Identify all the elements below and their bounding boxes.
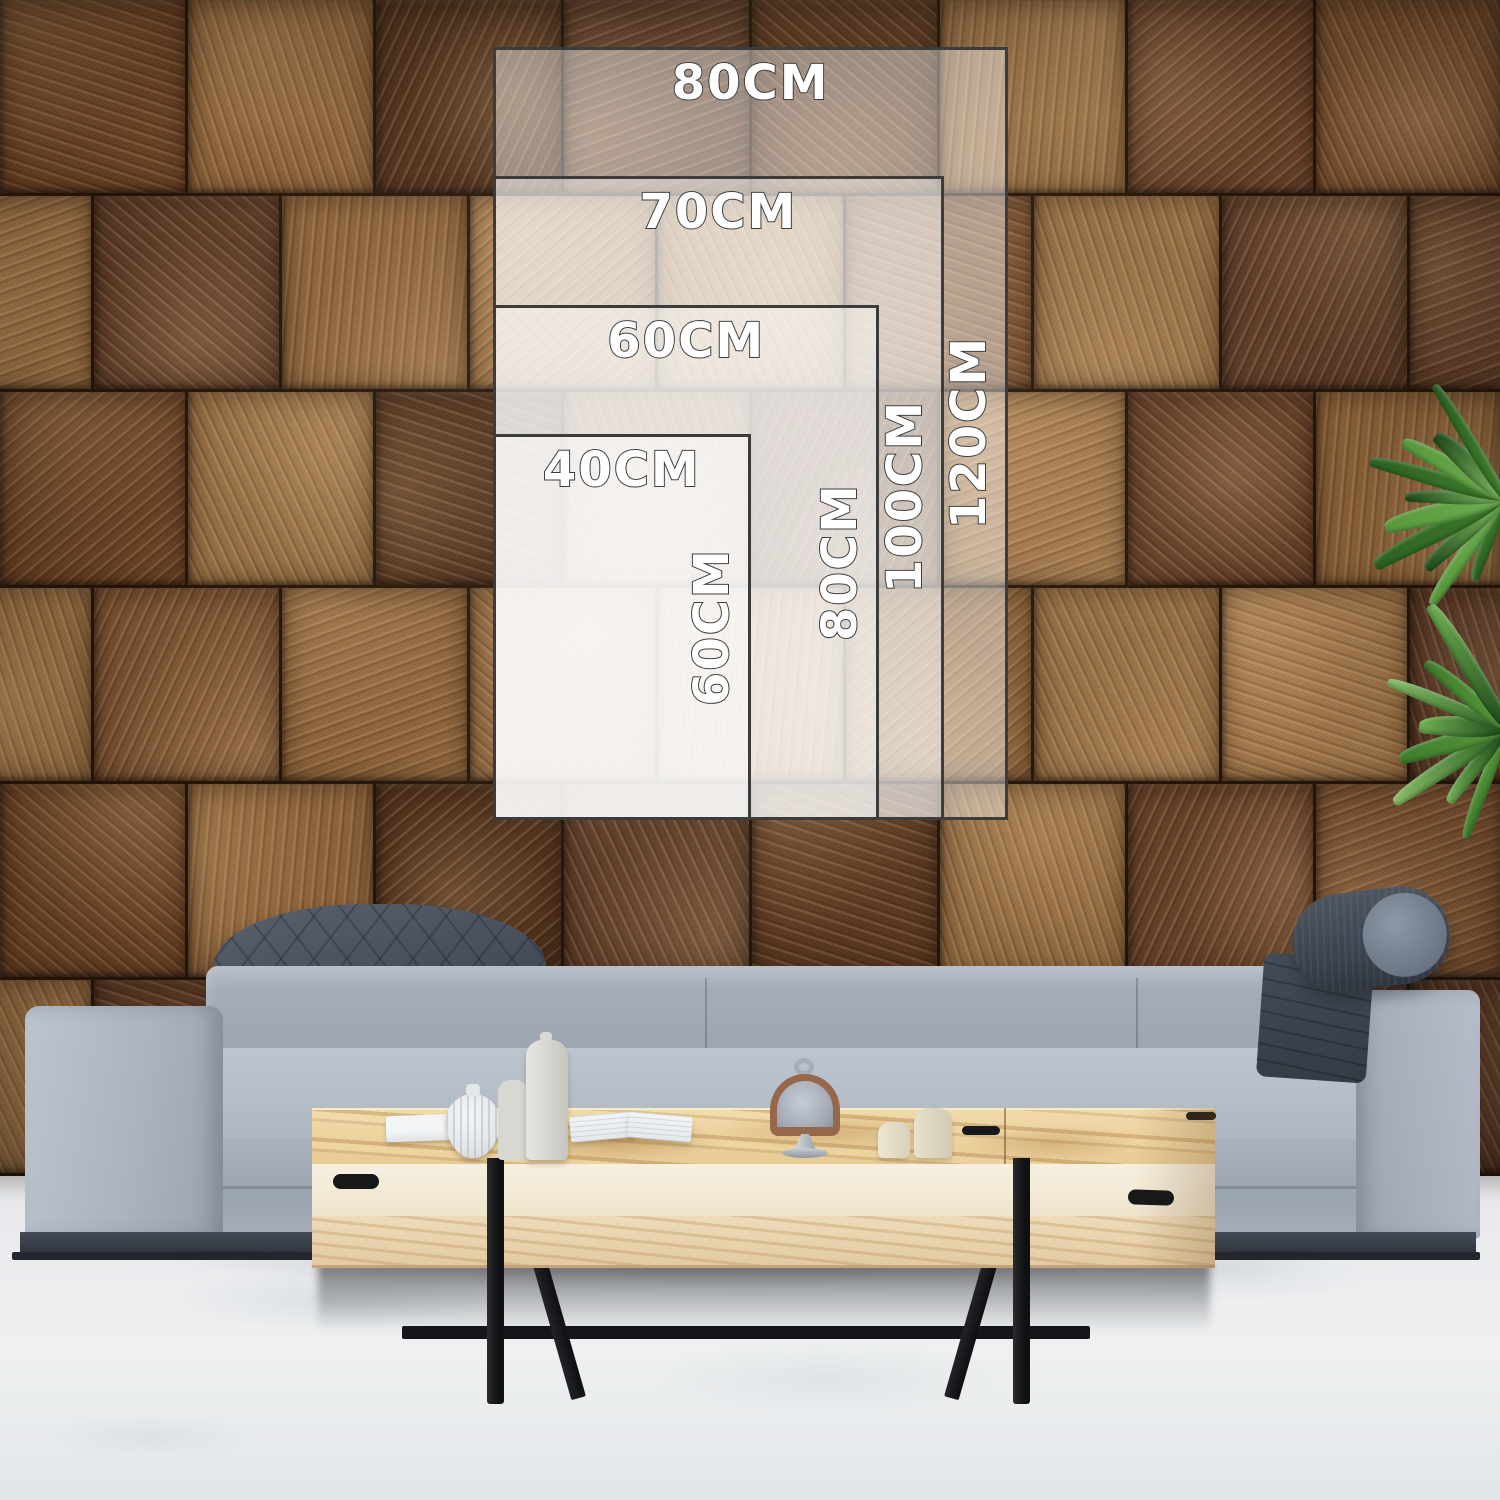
living-room-size-guide: 80CM 120CM 70CM 100CM 60CM 80CM 40CM 60C… [0,0,1500,1500]
table-decor [0,0,1500,1500]
open-book-right-page [627,1111,693,1142]
mirror-clock-foot [782,1148,828,1158]
open-book-left-page [569,1111,635,1142]
tall-cylinder-vase [526,1040,568,1160]
gourd-vase [446,1094,500,1158]
small-cylinder-vase [498,1080,528,1160]
table-mirror-clock [766,1062,844,1162]
mirror-clock-dome [770,1074,840,1136]
candle-short [878,1122,910,1158]
candle-tall [914,1108,952,1158]
open-book [570,1110,692,1144]
